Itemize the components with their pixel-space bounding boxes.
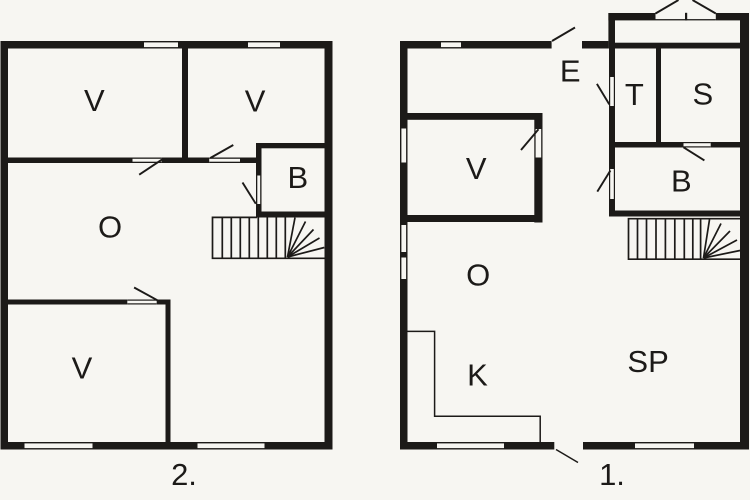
svg-text:V: V	[72, 351, 93, 386]
svg-text:V: V	[84, 83, 105, 118]
svg-text:K: K	[467, 358, 488, 393]
svg-text:E: E	[560, 54, 581, 89]
svg-text:S: S	[692, 77, 713, 112]
svg-text:2.: 2.	[171, 457, 197, 492]
svg-text:SP: SP	[627, 344, 668, 379]
svg-text:T: T	[625, 77, 644, 112]
svg-text:O: O	[98, 209, 122, 244]
svg-text:V: V	[245, 83, 266, 118]
svg-text:O: O	[466, 258, 490, 293]
svg-text:B: B	[671, 164, 692, 199]
svg-text:V: V	[466, 151, 487, 186]
svg-text:B: B	[287, 160, 308, 195]
svg-text:1.: 1.	[599, 457, 625, 492]
